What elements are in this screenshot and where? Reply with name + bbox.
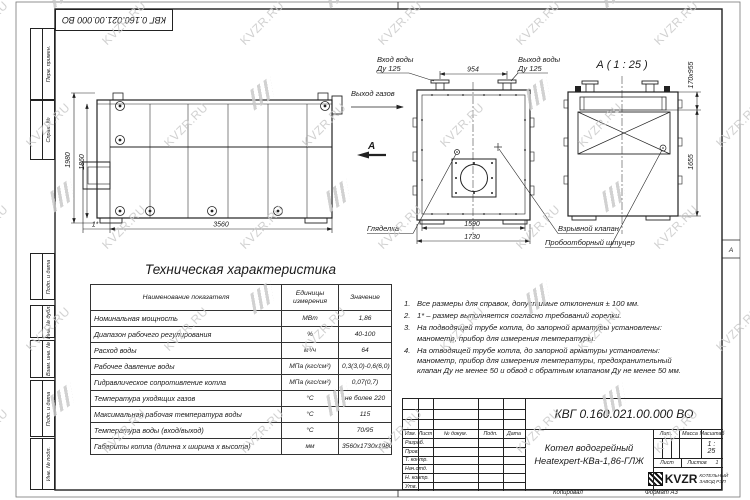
note-item: 3. На подводящей трубе котла, до запорно… [404,323,694,343]
table-row: Температура воды (вход/выход)°С70/95 [91,423,392,439]
note-item: 2. 1* – размер выполняется согласно треб… [404,311,694,321]
param-units: м³/ч [282,343,339,359]
note-text: На подводящей трубе котла, до запорной а… [417,323,694,343]
view-a: А ( 1 : 25 ) [564,59,701,234]
product-name-line1: Котел водогрейный [545,442,633,455]
tb-sheets-label: Листов [687,460,706,466]
margin-stamp-label: Инв. № подл. [46,447,52,481]
param-name: Номинальная мощность [91,311,282,327]
tb-divider [418,399,419,491]
dim-3560: 3560 [213,222,229,229]
param-name: Диапазон рабочего регулирования [91,327,282,343]
dim-1730: 1730 [464,234,480,241]
copied-label: Копировал [553,490,583,496]
tb-divider [403,464,525,465]
inverted-designation-box: КВГ 0.160.021.00.000 ВО [55,9,173,31]
margin-stamp-podp-data-2: Подп. и дата [30,380,55,437]
table-row: Температура уходящих газов°Сне более 220 [91,391,392,407]
tb-divider [403,473,525,474]
tb-col-data: Дата [507,431,521,437]
margin-stamp-label: Подп. и дата [46,259,52,293]
view-front: 954 Вход воды Ду 125 Выход воды Ду 125 Г… [367,55,662,248]
note-text: 1* – размер выполняется согласно требова… [417,311,694,321]
param-name: Рабочее давление воды [91,359,282,375]
param-value: 3560х1730х1980 [339,439,392,455]
notes-list: 1. Все размеры для справок, допустимые о… [404,299,694,378]
margin-stamp-perv-primen: Перв. примен. [30,28,55,100]
tb-col-list: Лист [419,431,433,437]
tb-col-dokum: № докум. [444,431,467,437]
param-units: °С [282,423,339,439]
param-name: Гидравлическое сопротивление котла [91,375,282,391]
table-row: Гидравлическое сопротивление котлаМПа (к… [91,375,392,391]
tb-row-nkontr: Н. контр. [405,475,429,481]
kvzr-logo-icon [648,472,663,486]
dim-1980: 1980 [65,152,72,168]
tb-mass-label: Масса [682,431,698,437]
view-side: 1980 1860 3560 1* [65,93,342,233]
param-value: 0,07(0,7) [339,375,392,391]
view-arrow-letter: А [367,141,375,152]
tb-lit-label: Лит. [660,431,672,437]
table-row: Габариты котла (длинна х ширина х высота… [91,439,392,455]
col-header-name: Наименование показателя [91,285,282,311]
tech-table: Наименование показателя Единицы измерени… [90,284,392,455]
gas-out-label: Выход газов [351,89,395,98]
margin-stamp-label: Подп. и дата [46,391,52,425]
water-in-label: Вход воды [377,55,414,64]
tb-row-tkontr: Т. контр. [405,457,428,463]
inverted-designation-text: КВГ 0.160.021.00.000 ВО [62,15,166,25]
param-name: Габариты котла (длинна х ширина х высота… [91,439,282,455]
tb-divider [679,429,680,458]
margin-stamp-label: Инв. № дубл. [46,305,52,339]
note-text: Все размеры для справок, допустимые откл… [417,299,694,309]
tb-divider [503,399,504,491]
param-name: Расход воды [91,343,282,359]
sampling-fitting-label: Пробоотборный штуцер [545,238,635,247]
tb-divider [478,399,479,491]
tb-scale-label: Масштаб [700,431,725,437]
note-number: 4. [404,346,417,377]
param-units: МВт [282,311,339,327]
note-item: 4. На отводящей трубе котла, до запорной… [404,346,694,377]
company-name: КОТЕЛЬНЫЙ ЗАВОД РЭП [699,473,728,484]
table-title: Техническая характеристика [90,262,391,277]
margin-stamp-vzam-inv: Взам. инв. № [30,340,55,378]
table-row: Диапазон рабочего регулирования%40-100 [91,327,392,343]
tb-divider [701,429,702,458]
margin-stamp-label: Перв. примен. [46,46,52,83]
note-number: 2. [404,311,417,321]
title-block: Изм. Лист № докум. Подп. Дата Разраб. Пр… [402,398,722,490]
tb-designation: КВГ 0.160.021.00.000 ВО [525,399,723,429]
tb-sheet-label: Лист [660,460,674,466]
kvzr-logo-text: KVZR [665,472,698,486]
param-units: % [282,327,339,343]
table-header-row: Наименование показателя Единицы измерени… [91,285,392,311]
dim-burner-offset: 1* [92,222,99,229]
table-row: Рабочее давление водыМПа (кгс/см²)0,3(3,… [91,359,392,375]
water-in-dn: Ду 125 [376,64,402,73]
tb-col-izm: Изм. [405,431,416,437]
tb-row-prov: Пров. [405,449,419,455]
water-out-label: Выход воды [518,55,561,64]
dim-1655: 1655 [688,154,695,170]
margin-stamp-podp-data-1: Подп. и дата [30,253,55,300]
note-number: 3. [404,323,417,343]
explosion-valve-label: Взрывной клапан [558,224,619,233]
param-name: Максимальная рабочая температура воды [91,407,282,423]
param-value: 64 [339,343,392,359]
tb-divider [671,438,672,458]
water-out-dn: Ду 125 [517,64,543,73]
param-name: Температура уходящих газов [91,391,282,407]
tb-row-nachotd: Нач.отд. [405,466,427,472]
zone-letter: А [728,247,733,254]
tb-divider [525,399,526,491]
param-value: 40-100 [339,327,392,343]
param-value: не более 220 [339,391,392,407]
param-units: мм [282,439,339,455]
tb-product-name: Котел водогрейный Heatexpert-КВа-1,86-ГЛ… [525,429,653,481]
param-value: 70/95 [339,423,392,439]
param-value: 115 [339,407,392,423]
tb-divider [403,447,525,448]
col-header-units: Единицы измерения [282,285,339,311]
col-header-value: Значение [339,285,392,311]
dim-170x955: 170х955 [688,61,695,88]
table-row: Максимальная рабочая температура воды°С1… [91,407,392,423]
note-number: 1. [404,299,417,309]
dim-1860: 1860 [79,154,86,170]
tb-divider [653,467,723,468]
margin-stamp-label: Взам. инв. № [46,342,52,376]
tb-divider [403,482,525,483]
format-label: Формат А3 [645,490,678,496]
tb-row-utv: Утв. [405,484,417,490]
table-row: Расход водым³/ч64 [91,343,392,359]
param-units: МПа (кгс/см²) [282,359,339,375]
tb-col-podp: Подп. [483,431,497,437]
product-name-line2: Heatexpert-КВа-1,86-ГЛЖ [534,455,643,468]
view-a-arrow: А [357,141,386,159]
tb-divider [403,438,525,439]
company-logo: KVZR КОТЕЛЬНЫЙ ЗАВОД РЭП [653,467,723,491]
param-name: Температура воды (вход/выход) [91,423,282,439]
param-value: 0,3(3,0)-0,6(6,0) [339,359,392,375]
tb-divider [653,438,723,439]
tb-divider [403,456,525,457]
view-a-title: А ( 1 : 25 ) [595,59,648,71]
company-name-line2: ЗАВОД РЭП [699,479,728,485]
tb-sheets-value: 1 [716,460,719,466]
table-row: Номинальная мощностьМВт1,86 [91,311,392,327]
margin-stamp-sprav-no: Справ. № [30,100,55,160]
tb-divider [681,458,682,467]
param-units: °С [282,391,339,407]
note-item: 1. Все размеры для справок, допустимые о… [404,299,694,309]
tb-divider [403,429,723,430]
tb-divider [653,458,723,459]
gas-out-callout: Выход газов [351,89,403,107]
tb-divider [403,419,525,420]
dim-954: 954 [467,67,479,74]
param-units: МПа (кгс/см²) [282,375,339,391]
tb-divider [662,438,663,458]
tb-divider [433,399,434,491]
drawing-sheet: А [0,0,750,500]
note-text: На отводящей трубе котла, до запорной ар… [417,346,694,377]
param-value: 1,86 [339,311,392,327]
param-units: °С [282,407,339,423]
tb-row-razrab: Разраб. [405,440,424,446]
margin-stamp-inv-dubl: Инв. № дубл. [30,305,55,338]
tb-scale-value: 1 : 25 [708,441,717,455]
tb-divider [403,409,525,410]
sight-glass-label: Гляделка [367,224,399,233]
margin-stamp-label: Справ. № [46,118,52,143]
margin-stamp-inv-podl: Инв. № подл. [30,438,55,490]
dim-1590: 1590 [464,221,480,228]
